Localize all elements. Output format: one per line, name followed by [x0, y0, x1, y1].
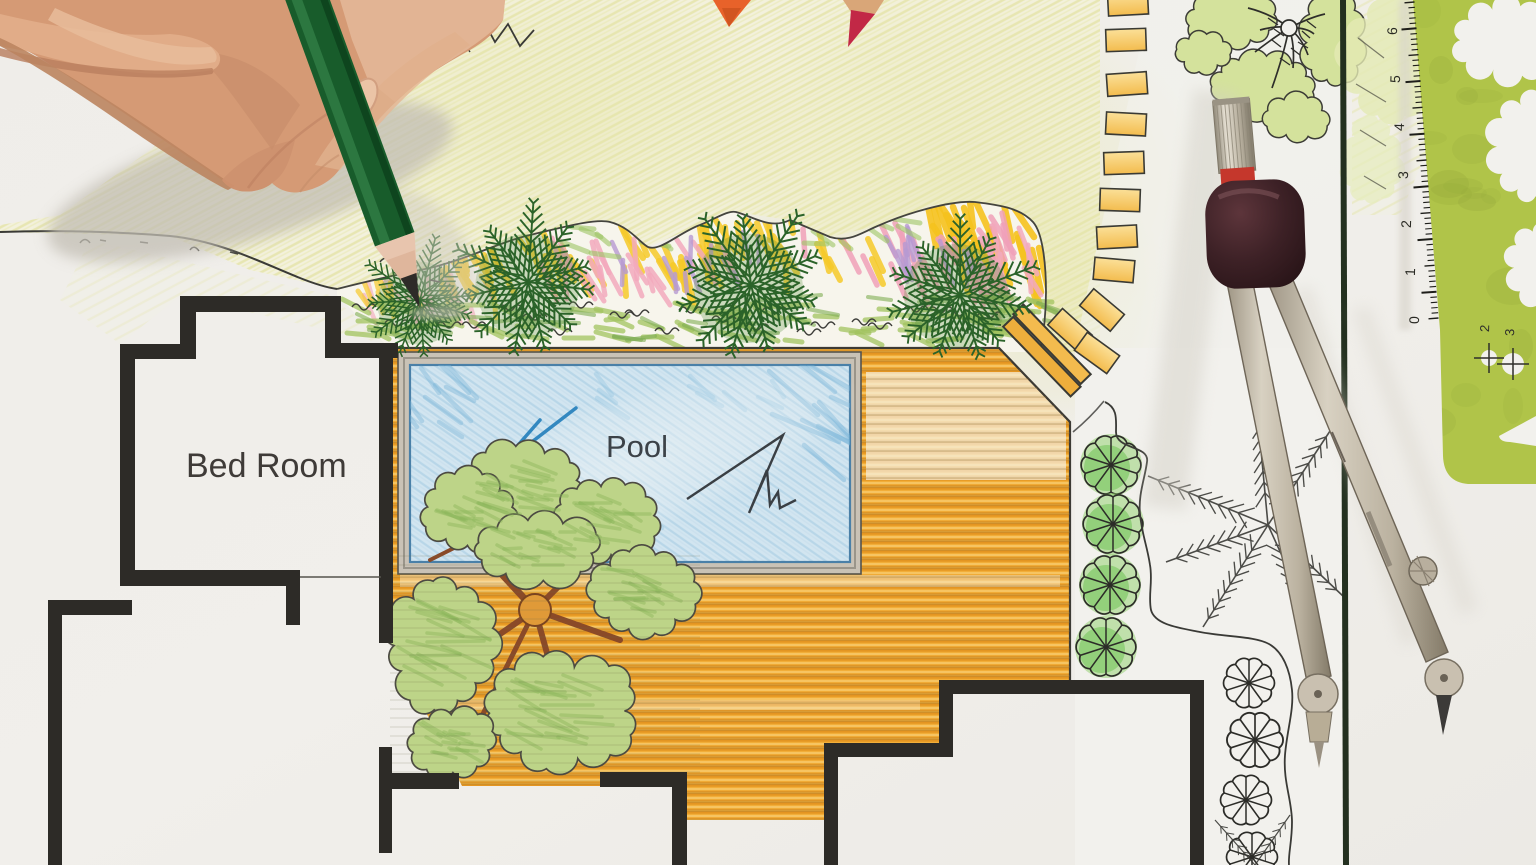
svg-text:3: 3	[1395, 171, 1411, 180]
svg-text:6: 6	[1384, 27, 1400, 36]
svg-text:4: 4	[1391, 123, 1407, 132]
svg-text:Bed Room: Bed Room	[186, 447, 347, 485]
svg-text:2: 2	[1398, 220, 1414, 229]
svg-text:1: 1	[1402, 268, 1418, 277]
svg-text:0: 0	[1406, 316, 1422, 325]
svg-text:5: 5	[1387, 75, 1403, 84]
svg-text:2: 2	[1477, 324, 1492, 332]
svg-text:Pool: Pool	[606, 429, 668, 464]
svg-text:3: 3	[1502, 328, 1517, 336]
